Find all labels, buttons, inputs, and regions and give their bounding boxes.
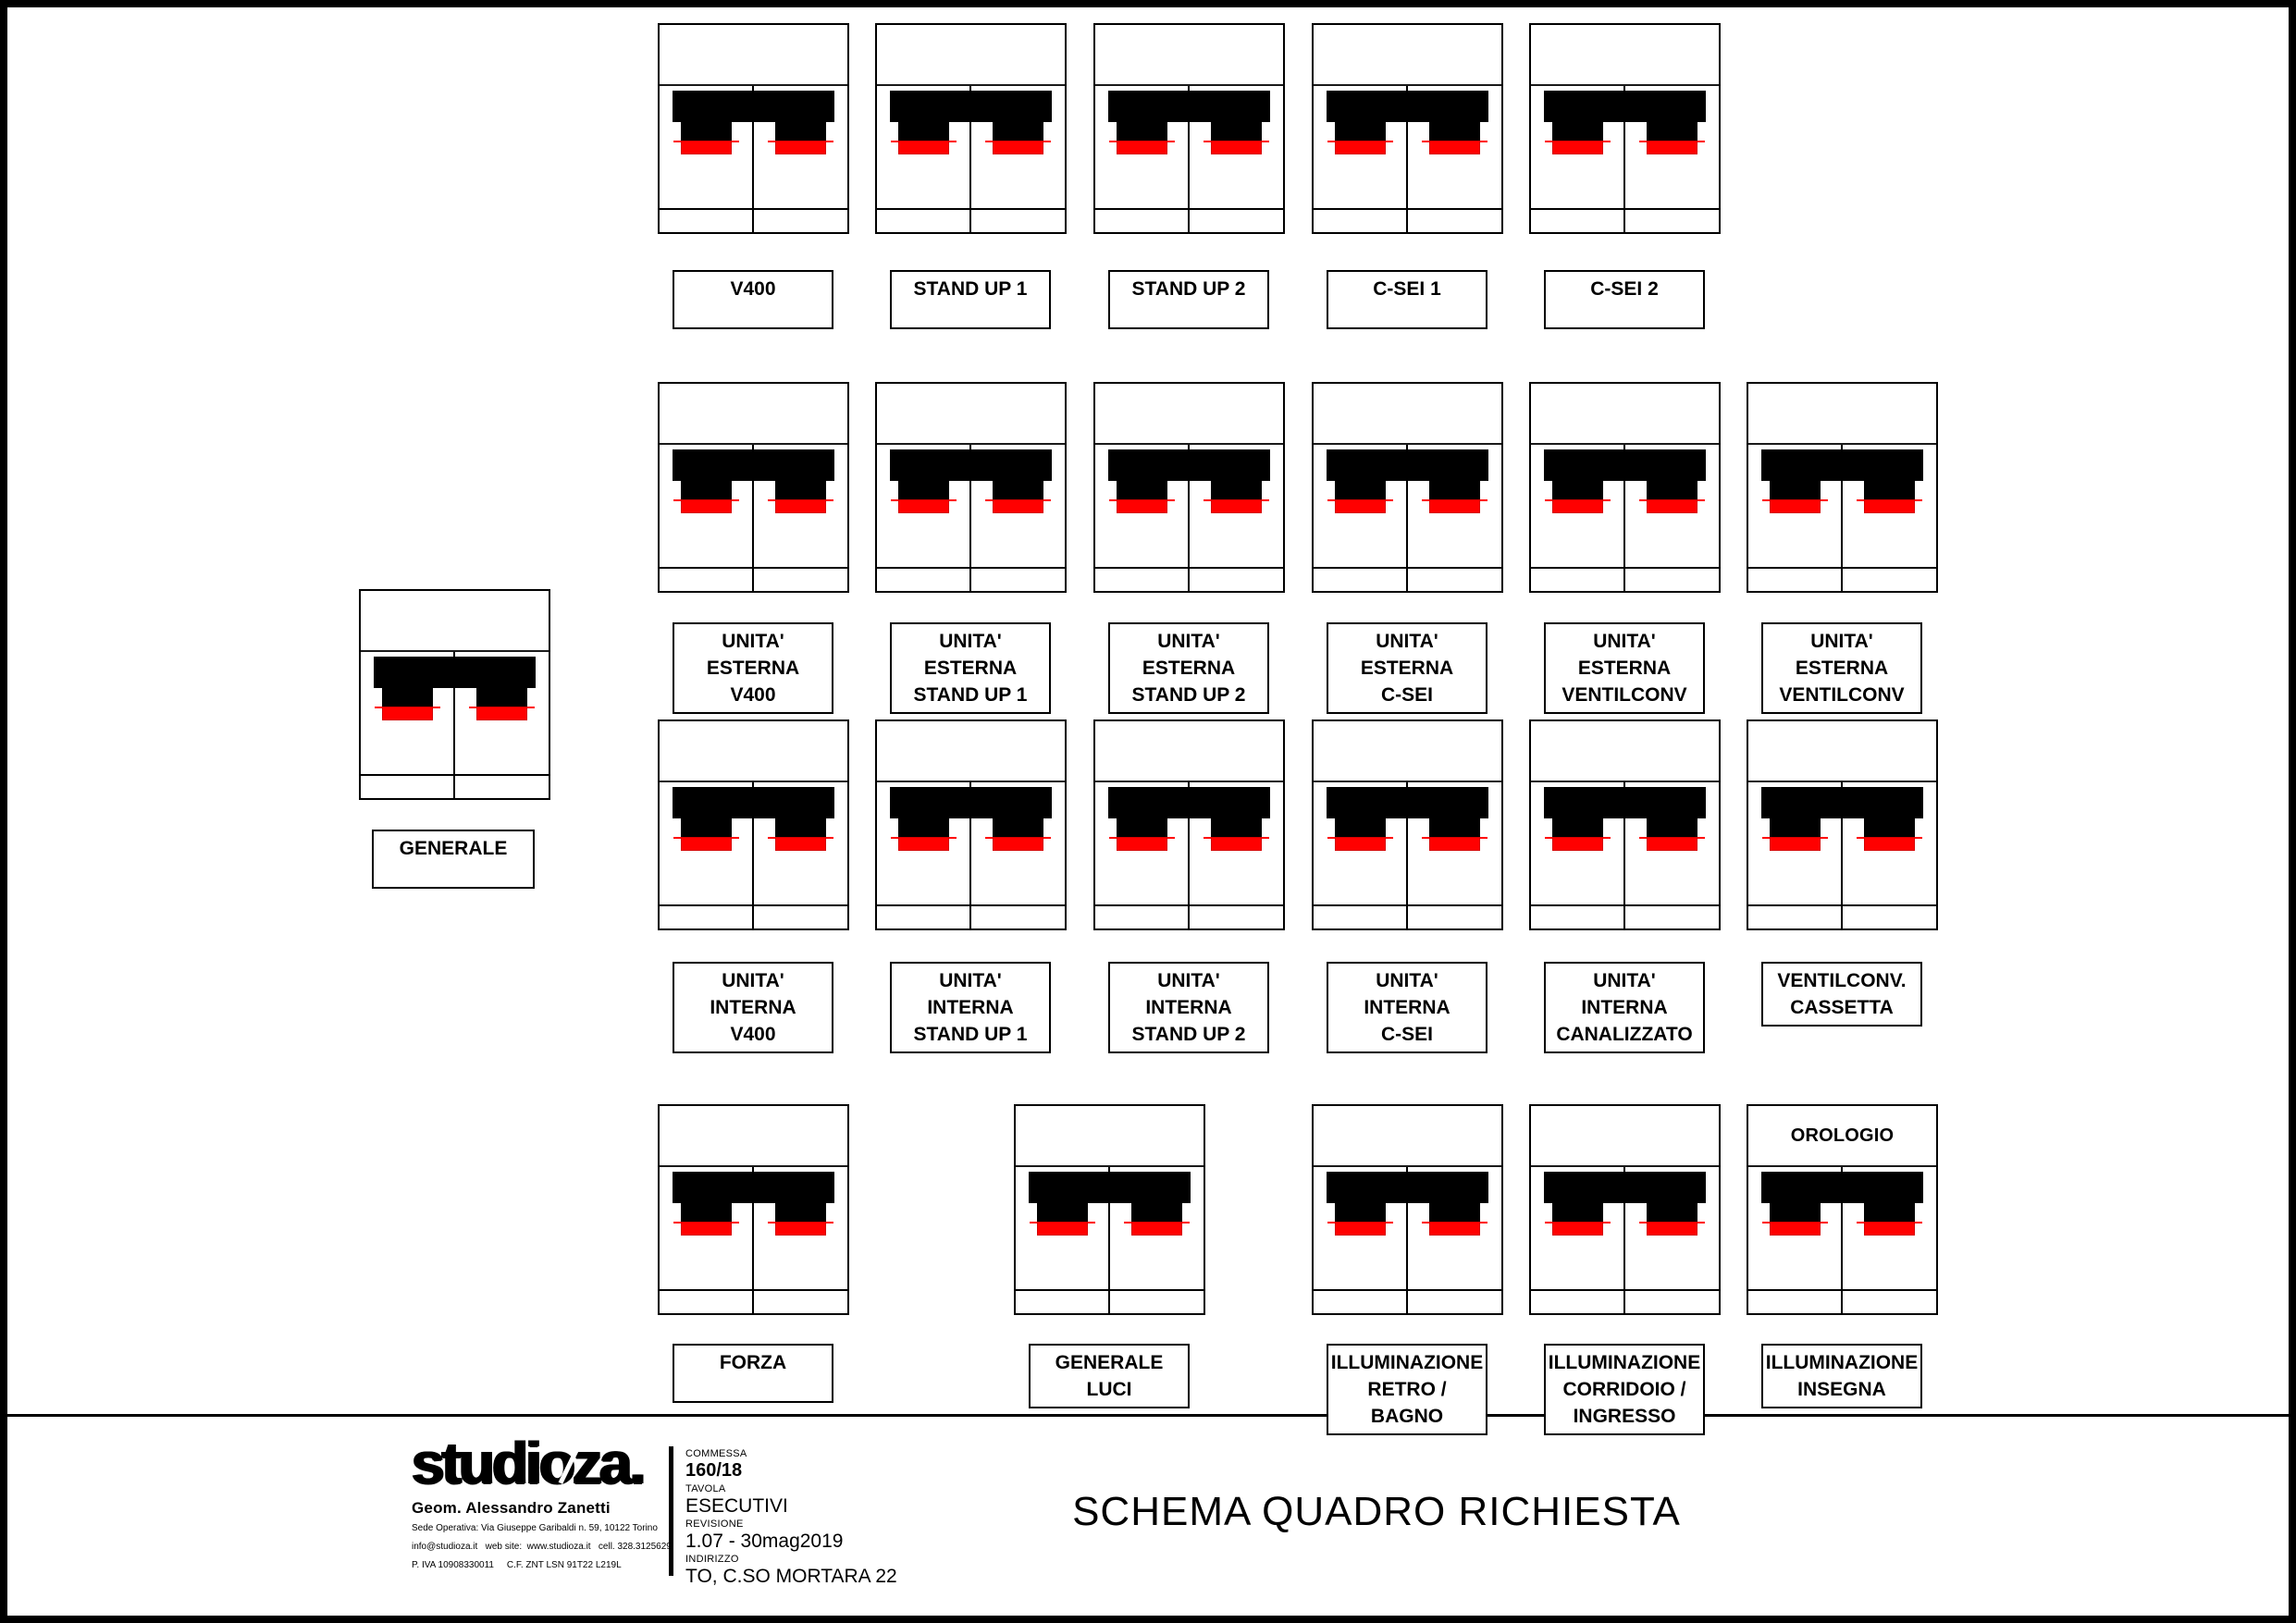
breaker-pole-left bbox=[1552, 122, 1603, 141]
breaker-module: OROLOGIO bbox=[1747, 1104, 1938, 1315]
studio-fiscal: P. IVA 10908330011 C.F. ZNT LSN 91T22 L2… bbox=[412, 1558, 689, 1573]
breaker-module bbox=[1093, 382, 1285, 593]
pole-tip-left bbox=[1117, 499, 1167, 513]
breaker-module bbox=[1312, 719, 1503, 930]
breaker-module bbox=[1529, 382, 1721, 593]
breaker-module bbox=[1529, 1104, 1721, 1315]
module-label-line: FORZA bbox=[676, 1349, 830, 1376]
pole-tip-right bbox=[1211, 837, 1262, 851]
breaker-module bbox=[1529, 23, 1721, 234]
main-breaker bbox=[359, 589, 550, 800]
breaker-bottom-strip bbox=[1531, 1289, 1719, 1291]
breaker-pole-left bbox=[1770, 818, 1821, 837]
module-label: GENERALE bbox=[372, 830, 535, 889]
breaker-pole-right bbox=[775, 818, 826, 837]
breaker-top-cell bbox=[1531, 1106, 1719, 1167]
module-label-line: STAND UP 2 bbox=[1112, 1021, 1265, 1048]
breaker-bottom-strip bbox=[1095, 208, 1283, 210]
breaker-bottom-strip bbox=[1095, 567, 1283, 569]
pole-tip-left bbox=[1117, 141, 1167, 154]
breaker-top-cell bbox=[1531, 721, 1719, 782]
breaker-pole-left bbox=[1770, 1203, 1821, 1222]
breaker-top-cell bbox=[1748, 384, 1936, 445]
module-label-line: STAND UP 1 bbox=[894, 682, 1047, 708]
pole-tip-left bbox=[1037, 1222, 1088, 1236]
module-label: STAND UP 2 bbox=[1108, 270, 1269, 329]
pole-tip-left bbox=[1335, 499, 1386, 513]
module-label-line: GENERALE bbox=[1032, 1349, 1186, 1376]
breaker-pole-left bbox=[898, 818, 949, 837]
breaker-pole-left bbox=[1335, 122, 1386, 141]
breaker-pole-left bbox=[1770, 481, 1821, 499]
breaker-module bbox=[1014, 1104, 1205, 1315]
breaker-pole-left bbox=[1552, 481, 1603, 499]
module-label-line: UNITA' INTERNA bbox=[894, 967, 1047, 1021]
module-label-line: UNITA' INTERNA bbox=[1548, 967, 1701, 1021]
breaker-pole-right bbox=[775, 481, 826, 499]
module-label: ILLUMINAZIONERETRO / BAGNO bbox=[1327, 1344, 1487, 1435]
module-label-line: C-SEI bbox=[1330, 682, 1484, 708]
breaker-symbol-body bbox=[1108, 449, 1270, 481]
module-label: FORZA bbox=[673, 1344, 833, 1403]
breaker-bottom-strip bbox=[1314, 208, 1501, 210]
module-label-line: V400 bbox=[676, 276, 830, 302]
pole-tip-right bbox=[775, 1222, 826, 1236]
breaker-symbol-body bbox=[673, 787, 834, 818]
module-label: UNITA' ESTERNAVENTILCONV bbox=[1761, 622, 1922, 714]
field-commessa-label: COMMESSA bbox=[685, 1448, 991, 1460]
module-label-line: INGRESSO bbox=[1548, 1403, 1701, 1430]
breaker-pole-left bbox=[1117, 481, 1167, 499]
breaker-symbol-body bbox=[673, 449, 834, 481]
pole-tip-right bbox=[1429, 837, 1480, 851]
module-label: VENTILCONV.CASSETTA bbox=[1761, 962, 1922, 1027]
pole-tip-left bbox=[1770, 837, 1821, 851]
pole-tip-right bbox=[993, 141, 1043, 154]
breaker-top-cell bbox=[1095, 721, 1283, 782]
module-label-line: CORRIDOIO / bbox=[1548, 1376, 1701, 1403]
brand-logo: studioza. bbox=[412, 1435, 643, 1491]
module-label-line: C-SEI 2 bbox=[1548, 276, 1701, 302]
breaker-top-cell bbox=[1095, 384, 1283, 445]
breaker-symbol-body bbox=[1544, 1172, 1706, 1203]
breaker-bottom-strip bbox=[660, 567, 847, 569]
field-indirizzo-label: INDIRIZZO bbox=[685, 1554, 991, 1566]
module-label: UNITA' ESTERNAC-SEI bbox=[1327, 622, 1487, 714]
breaker-top-cell bbox=[660, 721, 847, 782]
pole-tip-left bbox=[1335, 1222, 1386, 1236]
owner-name: Geom. Alessandro Zanetti bbox=[412, 1499, 689, 1518]
pole-tip-right bbox=[1647, 141, 1697, 154]
breaker-top-cell bbox=[1314, 1106, 1501, 1167]
module-label: UNITA' ESTERNAVENTILCONV bbox=[1544, 622, 1705, 714]
breaker-bottom-strip bbox=[1095, 904, 1283, 906]
breaker-bottom-strip bbox=[1314, 1289, 1501, 1291]
pole-tip-left bbox=[898, 141, 949, 154]
pole-tip-right bbox=[476, 707, 527, 720]
breaker-pole-right bbox=[1864, 818, 1915, 837]
breaker-symbol-body bbox=[1327, 1172, 1488, 1203]
breaker-bottom-strip bbox=[660, 904, 847, 906]
breaker-pole-left bbox=[681, 481, 732, 499]
breaker-module bbox=[658, 382, 849, 593]
breaker-bottom-strip bbox=[1748, 1289, 1936, 1291]
breaker-top-cell bbox=[1748, 721, 1936, 782]
pole-tip-right bbox=[1647, 1222, 1697, 1236]
pole-tip-left bbox=[681, 141, 732, 154]
breaker-module bbox=[1093, 23, 1285, 234]
pole-tip-left bbox=[1552, 499, 1603, 513]
breaker-pole-left bbox=[1552, 1203, 1603, 1222]
pole-tip-left bbox=[1335, 837, 1386, 851]
pole-tip-right bbox=[775, 141, 826, 154]
breaker-symbol-body bbox=[890, 787, 1052, 818]
pole-tip-left bbox=[1552, 837, 1603, 851]
module-label-line: RETRO / BAGNO bbox=[1330, 1376, 1484, 1430]
module-label-line: UNITA' ESTERNA bbox=[1548, 628, 1701, 682]
breaker-symbol-body bbox=[1761, 1172, 1923, 1203]
pole-tip-left bbox=[898, 837, 949, 851]
breaker-symbol-body bbox=[673, 1172, 834, 1203]
module-label-line: LUCI bbox=[1032, 1376, 1186, 1403]
breaker-bottom-strip bbox=[1748, 904, 1936, 906]
breaker-pole-right bbox=[1647, 818, 1697, 837]
breaker-symbol-body bbox=[673, 91, 834, 122]
breaker-top-cell bbox=[1095, 25, 1283, 86]
breaker-pole-right bbox=[1864, 481, 1915, 499]
field-commessa-value: 160/18 bbox=[685, 1460, 991, 1482]
module-label: V400 bbox=[673, 270, 833, 329]
module-label-line: UNITA' ESTERNA bbox=[1765, 628, 1919, 682]
breaker-pole-left bbox=[898, 122, 949, 141]
breaker-bottom-strip bbox=[877, 904, 1065, 906]
breaker-pole-right bbox=[1429, 122, 1480, 141]
breaker-bottom-strip bbox=[877, 567, 1065, 569]
drawing-sheet: studioza. Geom. Alessandro Zanetti Sede … bbox=[0, 0, 2296, 1623]
breaker-pole-right bbox=[1647, 481, 1697, 499]
pole-tip-left bbox=[898, 499, 949, 513]
breaker-module bbox=[1747, 382, 1938, 593]
breaker-bottom-strip bbox=[1016, 1289, 1204, 1291]
breaker-symbol-body bbox=[1761, 787, 1923, 818]
breaker-pole-right bbox=[1211, 818, 1262, 837]
breaker-pole-left bbox=[1335, 481, 1386, 499]
module-label-line: UNITA' ESTERNA bbox=[1112, 628, 1265, 682]
module-label-line: C-SEI 1 bbox=[1330, 276, 1484, 302]
breaker-top-label: OROLOGIO bbox=[1791, 1125, 1895, 1147]
breaker-top-cell bbox=[877, 25, 1065, 86]
breaker-pole-right bbox=[1429, 1203, 1480, 1222]
breaker-bottom-strip bbox=[1531, 567, 1719, 569]
module-label-line: STAND UP 1 bbox=[894, 1021, 1047, 1048]
breaker-pole-right bbox=[1211, 481, 1262, 499]
module-label-line: UNITA' INTERNA bbox=[1330, 967, 1484, 1021]
module-label-line: STAND UP 2 bbox=[1112, 682, 1265, 708]
module-label-line: UNITA' ESTERNA bbox=[1330, 628, 1484, 682]
breaker-bottom-strip bbox=[877, 208, 1065, 210]
breaker-symbol-body bbox=[1544, 449, 1706, 481]
module-label: UNITA' ESTERNASTAND UP 1 bbox=[890, 622, 1051, 714]
studio-address: Sede Operativa: Via Giuseppe Garibaldi n… bbox=[412, 1521, 689, 1536]
breaker-top-cell bbox=[877, 721, 1065, 782]
breaker-top-cell bbox=[1314, 25, 1501, 86]
breaker-bottom-strip bbox=[1748, 567, 1936, 569]
breaker-bottom-strip bbox=[1314, 904, 1501, 906]
breaker-pole-right bbox=[1647, 1203, 1697, 1222]
pole-tip-left bbox=[1335, 141, 1386, 154]
pole-tip-left bbox=[1552, 1222, 1603, 1236]
breaker-symbol-body bbox=[1108, 91, 1270, 122]
breaker-pole-right bbox=[1864, 1203, 1915, 1222]
breaker-symbol-body bbox=[1761, 449, 1923, 481]
breaker-pole-left bbox=[898, 481, 949, 499]
module-label: UNITA' ESTERNASTAND UP 2 bbox=[1108, 622, 1269, 714]
breaker-bottom-strip bbox=[660, 1289, 847, 1291]
sheet-title: SCHEMA QUADRO RICHIESTA bbox=[932, 1489, 1821, 1535]
breaker-top-cell bbox=[1531, 384, 1719, 445]
breaker-module bbox=[1747, 719, 1938, 930]
module-label-line: VENTILCONV bbox=[1548, 682, 1701, 708]
breaker-pole-right bbox=[1131, 1203, 1182, 1222]
module-label: C-SEI 1 bbox=[1327, 270, 1487, 329]
pole-tip-left bbox=[1770, 1222, 1821, 1236]
breaker-pole-left bbox=[1117, 122, 1167, 141]
breaker-symbol-body bbox=[374, 657, 536, 688]
breaker-module bbox=[1529, 719, 1721, 930]
breaker-module bbox=[875, 382, 1067, 593]
module-label: STAND UP 1 bbox=[890, 270, 1051, 329]
breaker-module bbox=[658, 1104, 849, 1315]
breaker-pole-right bbox=[775, 122, 826, 141]
breaker-top-cell bbox=[660, 25, 847, 86]
breaker-top-cell: OROLOGIO bbox=[1748, 1106, 1936, 1167]
pole-tip-left bbox=[681, 837, 732, 851]
breaker-bottom-strip bbox=[1531, 208, 1719, 210]
module-label-line: STAND UP 2 bbox=[1112, 276, 1265, 302]
pole-tip-left bbox=[382, 707, 433, 720]
module-label-line: GENERALE bbox=[376, 835, 531, 862]
title-block-separator bbox=[7, 1414, 2289, 1417]
breaker-pole-left bbox=[382, 688, 433, 707]
breaker-pole-left bbox=[1335, 1203, 1386, 1222]
breaker-top-cell bbox=[877, 384, 1065, 445]
module-label: GENERALELUCI bbox=[1029, 1344, 1190, 1408]
module-label: ILLUMINAZIONECORRIDOIO /INGRESSO bbox=[1544, 1344, 1705, 1435]
breaker-pole-right bbox=[476, 688, 527, 707]
pole-tip-left bbox=[1117, 837, 1167, 851]
pole-tip-right bbox=[1864, 499, 1915, 513]
breaker-symbol-body bbox=[890, 91, 1052, 122]
pole-tip-right bbox=[993, 499, 1043, 513]
pole-tip-left bbox=[681, 499, 732, 513]
pole-tip-right bbox=[1211, 499, 1262, 513]
module-label: UNITA' INTERNAC-SEI bbox=[1327, 962, 1487, 1053]
module-label: UNITA' INTERNAV400 bbox=[673, 962, 833, 1053]
module-label: UNITA' ESTERNAV400 bbox=[673, 622, 833, 714]
breaker-top-cell bbox=[1016, 1106, 1204, 1167]
module-label: UNITA' INTERNASTAND UP 1 bbox=[890, 962, 1051, 1053]
module-label: UNITA' INTERNACANALIZZATO bbox=[1544, 962, 1705, 1053]
breaker-pole-right bbox=[775, 1203, 826, 1222]
breaker-symbol-body bbox=[1327, 91, 1488, 122]
module-label-line: VENTILCONV bbox=[1765, 682, 1919, 708]
module-label-line: CASSETTA bbox=[1765, 994, 1919, 1021]
breaker-symbol-body bbox=[1327, 449, 1488, 481]
breaker-pole-right bbox=[1211, 122, 1262, 141]
breaker-top-cell bbox=[1314, 384, 1501, 445]
breaker-module bbox=[875, 719, 1067, 930]
breaker-symbol-body bbox=[890, 449, 1052, 481]
module-label-line: C-SEI bbox=[1330, 1021, 1484, 1048]
module-label-line: UNITA' ESTERNA bbox=[676, 628, 830, 682]
breaker-top-cell bbox=[660, 384, 847, 445]
breaker-pole-right bbox=[1429, 481, 1480, 499]
module-label-line: ILLUMINAZIONE bbox=[1548, 1349, 1701, 1376]
pole-tip-right bbox=[1864, 837, 1915, 851]
breaker-module bbox=[658, 23, 849, 234]
module-label-line: CANALIZZATO bbox=[1548, 1021, 1701, 1048]
studio-info-block: studioza. Geom. Alessandro Zanetti Sede … bbox=[412, 1435, 689, 1573]
breaker-symbol-body bbox=[1327, 787, 1488, 818]
breaker-pole-left bbox=[1037, 1203, 1088, 1222]
breaker-module bbox=[658, 719, 849, 930]
breaker-pole-right bbox=[993, 481, 1043, 499]
breaker-top-cell bbox=[361, 591, 549, 652]
breaker-module bbox=[1093, 719, 1285, 930]
breaker-symbol-body bbox=[1544, 787, 1706, 818]
breaker-pole-left bbox=[1552, 818, 1603, 837]
breaker-pole-left bbox=[681, 1203, 732, 1222]
breaker-module bbox=[1312, 382, 1503, 593]
breaker-symbol-body bbox=[1029, 1172, 1191, 1203]
pole-tip-right bbox=[993, 837, 1043, 851]
module-label-line: UNITA' INTERNA bbox=[1112, 967, 1265, 1021]
title-block-divider bbox=[669, 1446, 673, 1576]
breaker-pole-right bbox=[1429, 818, 1480, 837]
breaker-top-cell bbox=[1314, 721, 1501, 782]
breaker-top-cell bbox=[660, 1106, 847, 1167]
pole-tip-right bbox=[1864, 1222, 1915, 1236]
module-label-line: STAND UP 1 bbox=[894, 276, 1047, 302]
pole-tip-right bbox=[775, 499, 826, 513]
breaker-module bbox=[1312, 23, 1503, 234]
breaker-pole-left bbox=[1117, 818, 1167, 837]
breaker-pole-left bbox=[1335, 818, 1386, 837]
module-label-line: UNITA' ESTERNA bbox=[894, 628, 1047, 682]
breaker-bottom-strip bbox=[361, 774, 549, 776]
module-label-line: VENTILCONV. bbox=[1765, 967, 1919, 994]
breaker-bottom-strip bbox=[1314, 567, 1501, 569]
breaker-pole-right bbox=[993, 122, 1043, 141]
breaker-bottom-strip bbox=[660, 208, 847, 210]
breaker-pole-right bbox=[1647, 122, 1697, 141]
pole-tip-left bbox=[681, 1222, 732, 1236]
breaker-symbol-body bbox=[1544, 91, 1706, 122]
breaker-pole-left bbox=[681, 122, 732, 141]
module-label-line: ILLUMINAZIONE bbox=[1765, 1349, 1919, 1376]
module-label: UNITA' INTERNASTAND UP 2 bbox=[1108, 962, 1269, 1053]
field-indirizzo-value: TO, C.SO MORTARA 22 bbox=[685, 1566, 991, 1587]
breaker-module bbox=[1312, 1104, 1503, 1315]
module-label-line: V400 bbox=[676, 682, 830, 708]
pole-tip-right bbox=[1647, 499, 1697, 513]
module-label-line: INSEGNA bbox=[1765, 1376, 1919, 1403]
module-label-line: UNITA' INTERNA bbox=[676, 967, 830, 1021]
field-indirizzo: INDIRIZZO TO, C.SO MORTARA 22 bbox=[685, 1554, 991, 1587]
brand-text: studioza. bbox=[412, 1430, 643, 1496]
pole-tip-left bbox=[1552, 141, 1603, 154]
pole-tip-right bbox=[1429, 1222, 1480, 1236]
breaker-top-cell bbox=[1531, 25, 1719, 86]
module-label-line: V400 bbox=[676, 1021, 830, 1048]
pole-tip-right bbox=[1131, 1222, 1182, 1236]
module-label: ILLUMINAZIONEINSEGNA bbox=[1761, 1344, 1922, 1408]
pole-tip-right bbox=[775, 837, 826, 851]
breaker-module bbox=[875, 23, 1067, 234]
breaker-pole-left bbox=[681, 818, 732, 837]
pole-tip-right bbox=[1211, 141, 1262, 154]
breaker-bottom-strip bbox=[1531, 904, 1719, 906]
breaker-pole-right bbox=[993, 818, 1043, 837]
module-label: C-SEI 2 bbox=[1544, 270, 1705, 329]
field-commessa: COMMESSA 160/18 bbox=[685, 1448, 991, 1482]
pole-tip-right bbox=[1429, 499, 1480, 513]
pole-tip-right bbox=[1429, 141, 1480, 154]
pole-tip-right bbox=[1647, 837, 1697, 851]
studio-contacts: info@studioza.it web site: www.studioza.… bbox=[412, 1540, 689, 1555]
module-label-line: ILLUMINAZIONE bbox=[1330, 1349, 1484, 1376]
breaker-symbol-body bbox=[1108, 787, 1270, 818]
pole-tip-left bbox=[1770, 499, 1821, 513]
